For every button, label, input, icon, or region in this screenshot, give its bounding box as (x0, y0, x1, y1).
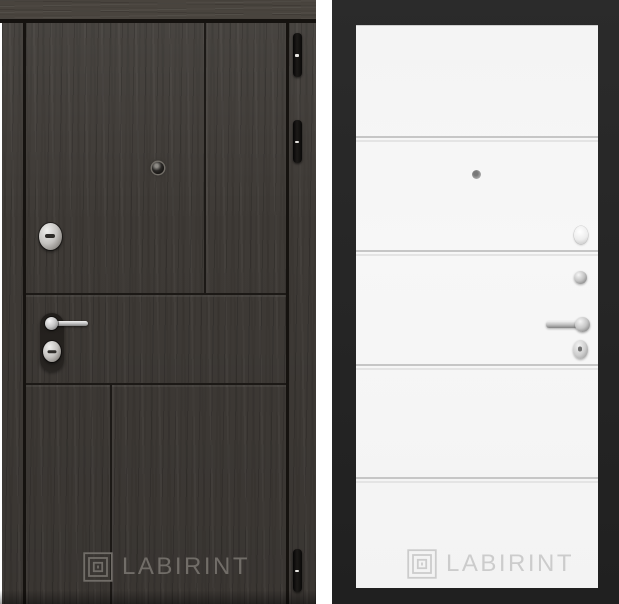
door-hinge (293, 33, 302, 77)
labirint-maze-icon (407, 549, 437, 579)
door-frame-top-rail (0, 0, 316, 19)
door-image-white-panel: LABIRINT (332, 0, 619, 604)
lever-handle (546, 321, 578, 328)
lock-cylinder (573, 340, 588, 359)
hinge-pin (295, 54, 299, 57)
panel-groove (356, 477, 598, 483)
panel-seam (26, 383, 286, 385)
labirint-maze-icon (83, 552, 113, 582)
keyhole-slot (578, 347, 582, 352)
keyhole-slot (45, 234, 55, 238)
keyhole-slot (48, 350, 57, 354)
brand-name: LABIRINT (446, 549, 574, 579)
panel-groove (356, 136, 598, 142)
peephole (472, 170, 481, 179)
brand-logo: LABIRINT (407, 549, 574, 579)
door-hinge (293, 549, 302, 592)
bottom-shadow (0, 590, 316, 604)
thumbturn-knob (574, 226, 588, 244)
handle-rose (45, 317, 58, 330)
door-frame-left-jamb (2, 23, 23, 604)
door-image-dark-wood: LABIRINT (0, 0, 316, 604)
panel-groove (356, 250, 598, 256)
door-frame-hinge-strip (289, 23, 316, 604)
brand-name: LABIRINT (122, 552, 250, 582)
night-latch-knob (574, 271, 587, 284)
peephole (152, 162, 164, 174)
security-lock-cylinder (39, 223, 62, 250)
handle-rose (575, 317, 590, 332)
door-hinge (293, 120, 302, 163)
lock-cylinder (43, 341, 61, 362)
panel-groove (356, 364, 598, 370)
door-slab: LABIRINT (26, 23, 286, 604)
door-slab: LABIRINT (356, 25, 598, 588)
door-product-images: LABIRINT (0, 0, 619, 604)
hinge-pin (295, 570, 299, 573)
hinge-pin (295, 141, 299, 144)
panel-seam (204, 23, 206, 294)
panel-seam (26, 293, 286, 295)
brand-logo: LABIRINT (83, 552, 250, 582)
